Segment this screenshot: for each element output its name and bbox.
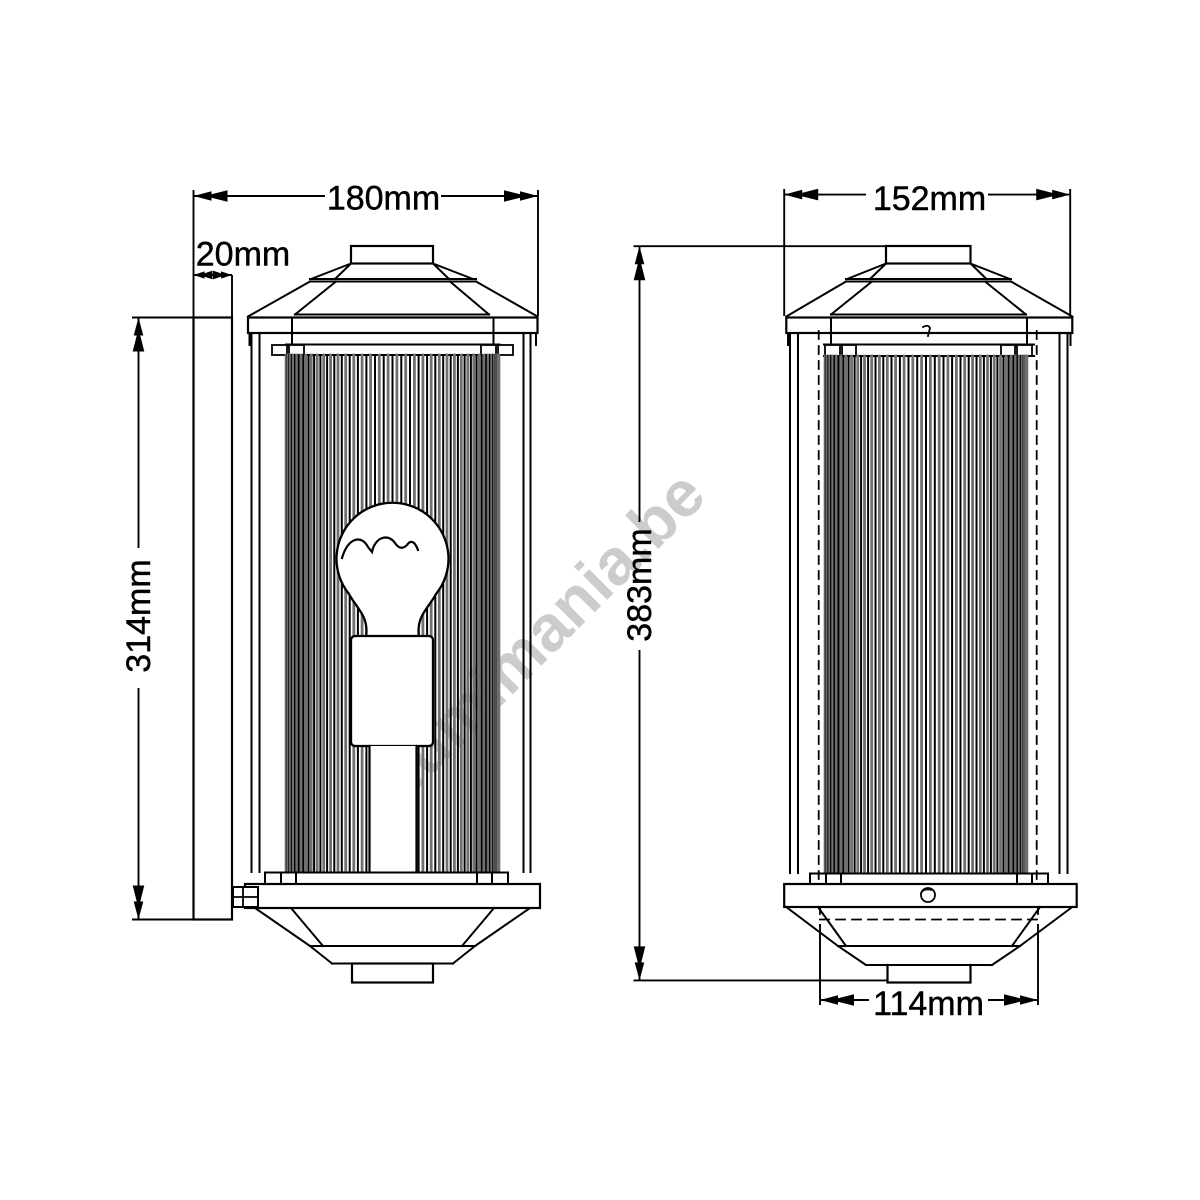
svg-text:180mm: 180mm (327, 180, 440, 218)
svg-text:114mm: 114mm (873, 985, 984, 1023)
svg-text:314mm: 314mm (120, 559, 158, 672)
svg-text:383mm: 383mm (621, 528, 659, 641)
svg-text:152mm: 152mm (873, 180, 986, 218)
svg-text:20mm: 20mm (196, 236, 290, 274)
